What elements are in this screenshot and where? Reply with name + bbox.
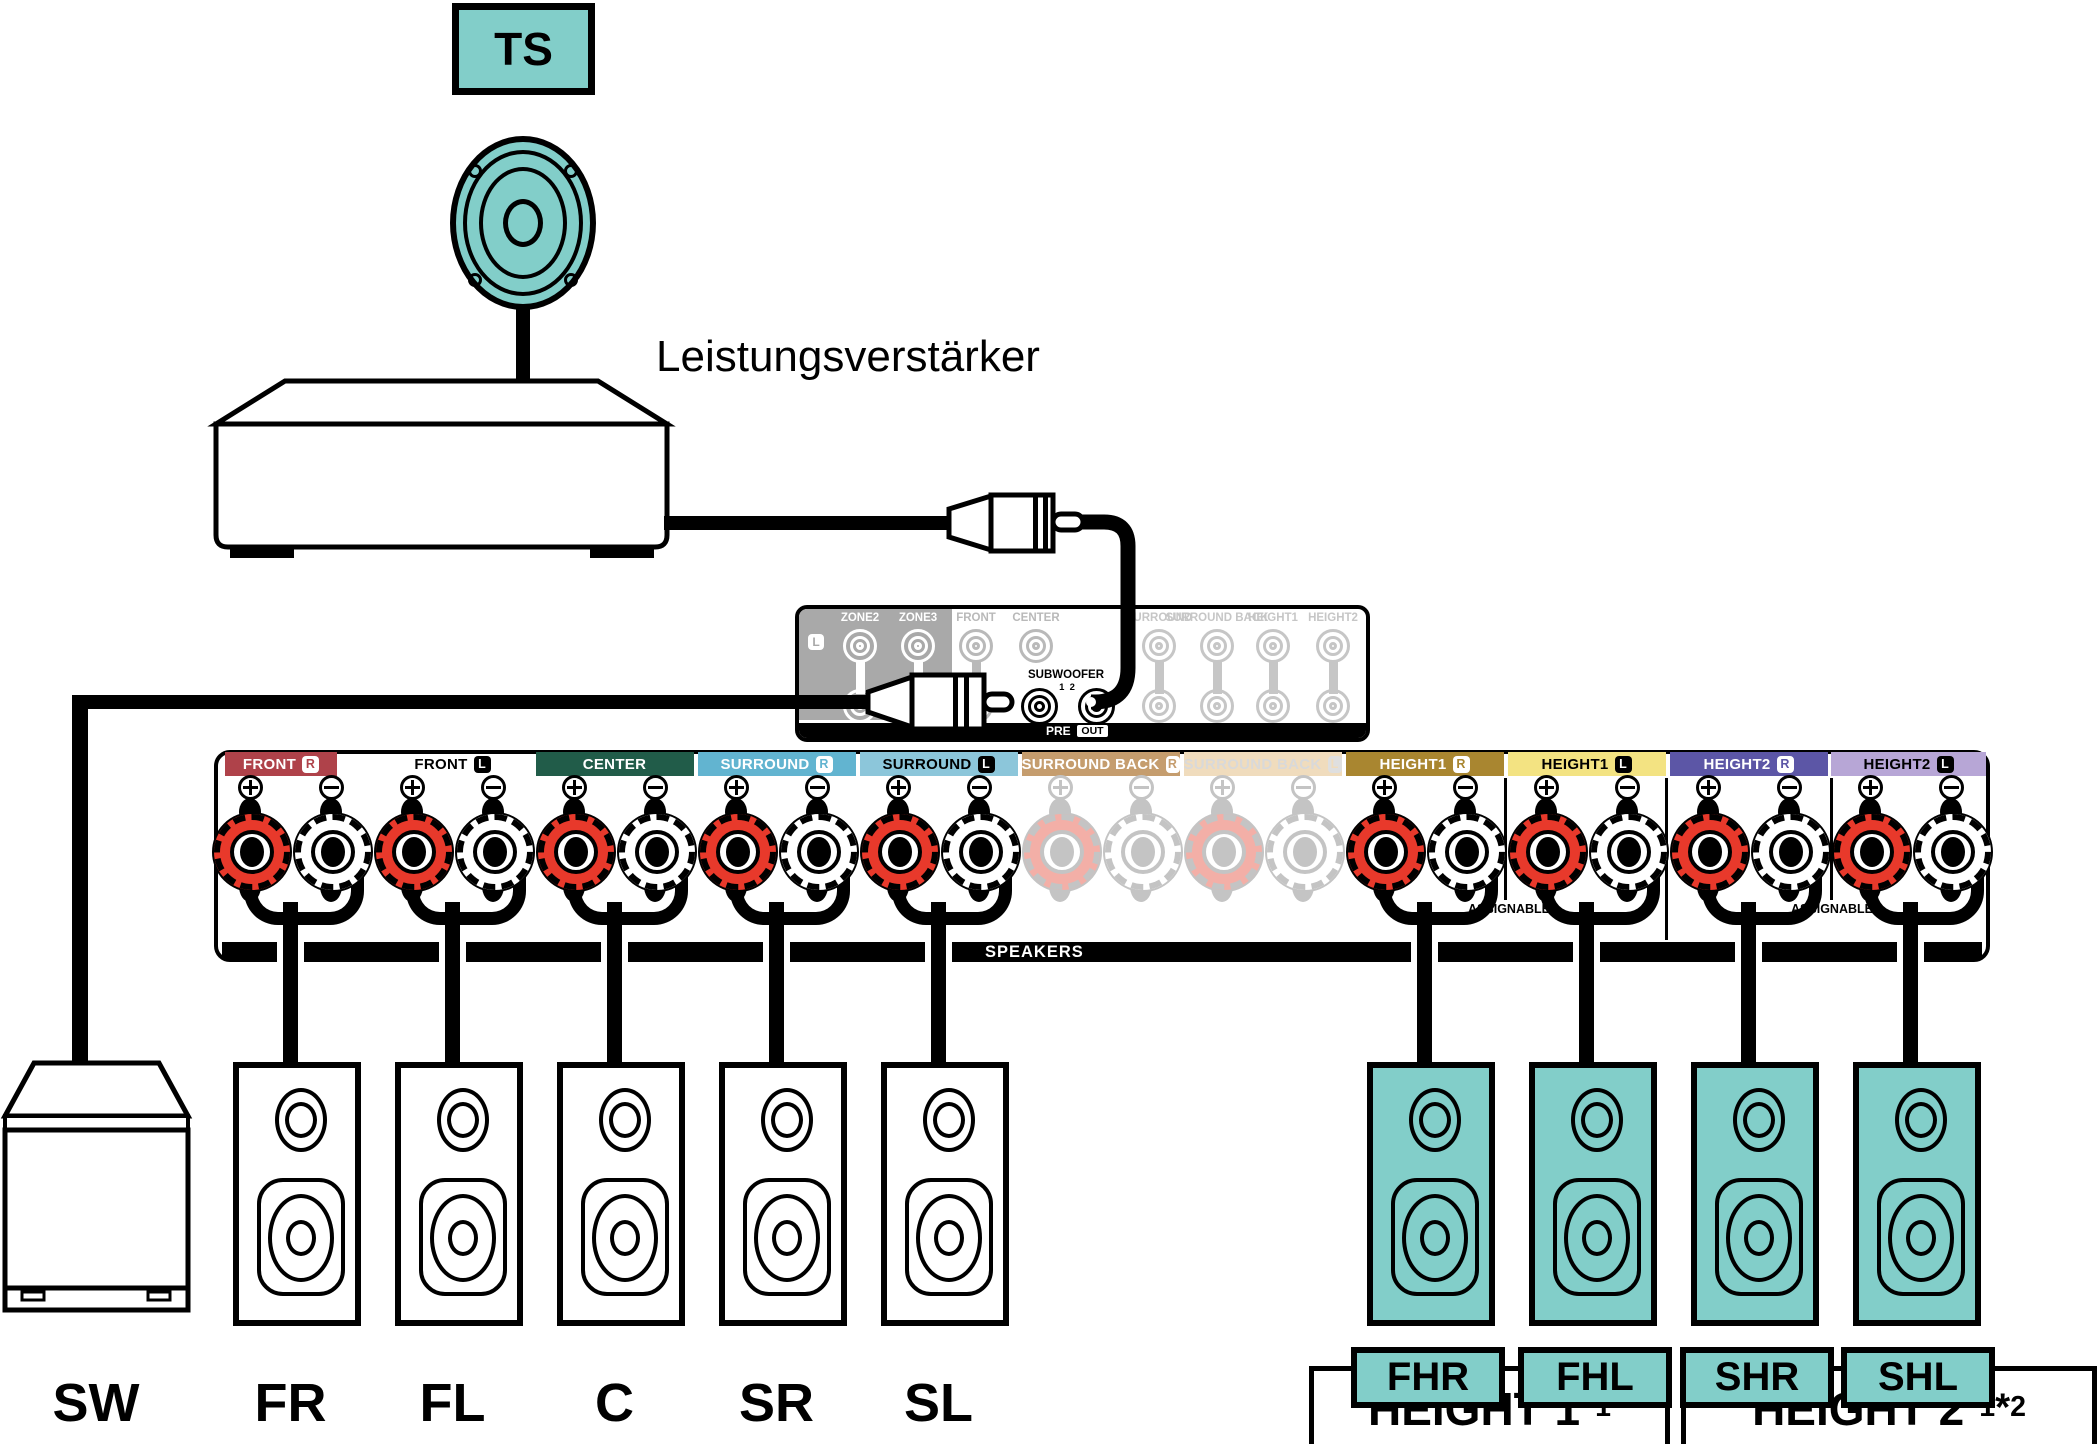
ts-speaker-icon — [450, 136, 596, 310]
binding-post-surround-back-r-plus — [1022, 812, 1102, 892]
channel-l-badge: L — [474, 756, 491, 773]
ts-label-box: TS — [452, 3, 595, 95]
terminal-header-label: SURROUND BACK — [1022, 756, 1160, 773]
assignable-divider — [1830, 778, 1833, 900]
subwoofer-cable-graphic — [0, 660, 1010, 740]
speaker-cable-surround-l — [931, 902, 946, 1064]
speaker-woofer — [1582, 1220, 1612, 1256]
binding-post-height2-r-plus — [1670, 812, 1750, 892]
terminal-minus-icon-center — [643, 775, 668, 800]
ts-speaker-screw — [468, 273, 482, 287]
binding-post-center — [1536, 837, 1560, 867]
terminal-plus-icon-height1-r — [1372, 775, 1397, 800]
terminal-header-label: HEIGHT1 — [1379, 756, 1446, 773]
binding-post-height2-r-minus — [1751, 812, 1831, 892]
subwoofer-front-face — [5, 1130, 188, 1288]
amplifier-front-face — [216, 424, 667, 547]
rca-plug-2-body — [912, 675, 984, 729]
terminal-minus-icon-height2-r — [1777, 775, 1802, 800]
speaker-tweeter — [1419, 1102, 1451, 1138]
terminal-plus-icon-height2-r — [1696, 775, 1721, 800]
terminal-plus-icon-surround-l — [886, 775, 911, 800]
preout-jack-height2-bottom-center — [1329, 702, 1337, 710]
binding-post-surround-l-minus — [941, 812, 1021, 892]
terminal-minus-icon-height1-r — [1453, 775, 1478, 800]
speaker-icon-shr — [1691, 1062, 1819, 1326]
speaker-woofer — [610, 1220, 640, 1256]
binding-post-front-r-minus — [293, 812, 373, 892]
speaker-woofer — [286, 1220, 316, 1256]
preout-jack-height2-top — [1316, 629, 1350, 663]
binding-post-center-minus — [617, 812, 697, 892]
terminal-plus-icon-front-l — [400, 775, 425, 800]
channel-l-badge: L — [1937, 756, 1954, 773]
subwoofer2-jack-hole — [1086, 697, 1096, 707]
terminal-minus-icon-surround-back-r — [1129, 775, 1154, 800]
speaker-icon-fr — [233, 1062, 361, 1326]
subwoofer-speaker-label: SW — [16, 1372, 176, 1434]
speaker-woofer — [1420, 1220, 1450, 1256]
speaker-cable-center — [607, 902, 622, 1064]
terminal-header-height2-l: HEIGHT2L — [1831, 752, 1986, 776]
speakers-bar-segment — [1438, 942, 1573, 959]
binding-post-height1-l-plus — [1508, 812, 1588, 892]
binding-post-height1-l-minus — [1589, 812, 1669, 892]
preout-jack-height1-bottom — [1256, 689, 1290, 723]
binding-post-center — [1941, 837, 1965, 867]
rca-plug-2-ring — [964, 675, 969, 729]
ts-speaker-screw — [564, 273, 578, 287]
speakers-bar-segment — [790, 942, 925, 959]
speaker-tag-fhl: FHL — [1518, 1347, 1672, 1408]
binding-post-center — [1860, 837, 1884, 867]
binding-post-surround-r-minus — [779, 812, 859, 892]
preout-jack-surround-back-bottom — [1200, 689, 1234, 723]
binding-post-height2-l-plus — [1832, 812, 1912, 892]
speaker-woofer — [1744, 1220, 1774, 1256]
preout-jack-height1-bottom-center — [1269, 702, 1277, 710]
speaker-label-sl: SL — [859, 1372, 1019, 1434]
terminal-header-label: CENTER — [583, 756, 646, 773]
binding-post-center — [888, 837, 912, 867]
terminal-plus-icon-height2-l — [1858, 775, 1883, 800]
subwoofer-rca-cable — [72, 695, 872, 709]
speaker-tweeter — [447, 1102, 479, 1138]
binding-post-center — [1698, 837, 1722, 867]
speaker-label-fr: FR — [211, 1372, 371, 1434]
speaker-icon-fhl — [1529, 1062, 1657, 1326]
preout-jack-height1-top-center — [1269, 642, 1277, 650]
binding-post-center — [1455, 837, 1479, 867]
binding-post-height2-l-minus — [1913, 812, 1993, 892]
speakers-bar-segment — [1600, 942, 1735, 959]
binding-post-center — [402, 837, 426, 867]
rca-plug-2-boot — [868, 677, 912, 727]
speaker-tag-shr: SHR — [1680, 1347, 1834, 1408]
wiring-diagram-canvas: TS Leistungsverstärker L ZONE2ZONE3F — [0, 0, 2097, 1444]
speaker-woofer — [772, 1220, 802, 1256]
binding-post-surround-back-l-minus — [1265, 812, 1345, 892]
speaker-icon-c — [557, 1062, 685, 1326]
rca-plug-1-ring — [1033, 495, 1038, 551]
terminal-header-surround-back-l: SURROUND BACKL — [1184, 752, 1342, 776]
preout-column-label-height2: HEIGHT2 — [1273, 612, 1370, 624]
speakers-bar-segment — [628, 942, 763, 959]
speaker-tweeter — [285, 1102, 317, 1138]
terminal-header-height1-r: HEIGHT1R — [1346, 752, 1504, 776]
binding-post-center — [1131, 837, 1155, 867]
rca-plug-1-ring — [1043, 495, 1048, 551]
subwoofer-cable-vertical — [72, 700, 88, 1064]
preout-jack-height1-top — [1256, 629, 1290, 663]
ts-speaker-hub — [503, 199, 543, 247]
terminal-header-front-r: FRONTR — [225, 752, 337, 776]
speaker-label-c: C — [535, 1372, 695, 1434]
preout-jack-surround-back-top-center — [1213, 642, 1221, 650]
speaker-woofer — [1906, 1220, 1936, 1256]
binding-post-height1-r-minus — [1427, 812, 1507, 892]
preout-jack-height2-bottom — [1316, 689, 1350, 723]
terminal-header-surround-back-r: SURROUND BACKR — [1022, 752, 1180, 776]
speaker-woofer — [934, 1220, 964, 1256]
binding-post-surround-back-r-minus — [1103, 812, 1183, 892]
speaker-tweeter — [1743, 1102, 1775, 1138]
terminal-header-label: SURROUND — [720, 756, 809, 773]
terminal-header-center: CENTER — [536, 752, 694, 776]
rca-plug-2-tip — [984, 694, 1012, 710]
terminal-header-label: HEIGHT2 — [1703, 756, 1770, 773]
speaker-cable-surround-r — [769, 902, 784, 1064]
amplifier-top-face — [216, 381, 667, 424]
terminal-plus-icon-surround-back-r — [1048, 775, 1073, 800]
binding-post-center — [645, 837, 669, 867]
speaker-icon-fl — [395, 1062, 523, 1326]
binding-post-center — [1617, 837, 1641, 867]
binding-post-height1-r-plus — [1346, 812, 1426, 892]
terminal-minus-icon-front-r — [319, 775, 344, 800]
speaker-tag-shl: SHL — [1841, 1347, 1995, 1408]
terminal-minus-icon-height2-l — [1939, 775, 1964, 800]
subwoofer-base-slot — [22, 1292, 44, 1300]
speaker-tweeter — [1581, 1102, 1613, 1138]
channel-r-badge: R — [1166, 756, 1180, 773]
amplifier-foot — [230, 547, 294, 558]
binding-post-surround-l-plus — [860, 812, 940, 892]
speaker-icon-shl — [1853, 1062, 1981, 1326]
terminal-header-label: FRONT — [243, 756, 296, 773]
speaker-tweeter — [1905, 1102, 1937, 1138]
terminal-minus-icon-surround-l — [967, 775, 992, 800]
speaker-woofer — [448, 1220, 478, 1256]
terminal-header-front-l: FRONTL — [374, 752, 532, 776]
speaker-icon-fhr — [1367, 1062, 1495, 1326]
terminal-plus-icon-front-r — [238, 775, 263, 800]
terminal-minus-icon-surround-back-l — [1291, 775, 1316, 800]
subwoofer-speaker-icon — [0, 1050, 220, 1320]
binding-post-center — [564, 837, 588, 867]
subwoofer-base-slot — [148, 1292, 170, 1300]
speaker-tweeter — [771, 1102, 803, 1138]
channel-l-badge: L — [1328, 756, 1342, 773]
terminal-header-height2-r: HEIGHT2R — [1670, 752, 1828, 776]
rca-plug-2-ring — [953, 675, 958, 729]
binding-post-center — [969, 837, 993, 867]
speaker-cable-height1-r — [1417, 902, 1432, 1064]
speaker-cable-height2-l — [1903, 902, 1918, 1064]
speaker-cable-height2-r — [1741, 902, 1756, 1064]
channel-r-badge: R — [1777, 756, 1794, 773]
amplifier-foot — [590, 547, 654, 558]
cable-to-subwoofer2-jack — [1081, 522, 1128, 702]
terminal-minus-icon-surround-r — [805, 775, 830, 800]
terminal-minus-icon-height1-l — [1615, 775, 1640, 800]
binding-post-center — [240, 837, 264, 867]
binding-post-center — [1779, 837, 1803, 867]
speaker-tweeter — [933, 1102, 965, 1138]
terminal-header-label: HEIGHT1 — [1541, 756, 1608, 773]
speakers-bar-segment — [1762, 942, 1897, 959]
binding-post-surround-r-plus — [698, 812, 778, 892]
binding-post-center — [1050, 837, 1074, 867]
terminal-plus-icon-surround-r — [724, 775, 749, 800]
binding-post-front-l-minus — [455, 812, 535, 892]
binding-post-front-r-plus — [212, 812, 292, 892]
speakers-bar-segment — [1924, 942, 1982, 959]
channel-r-badge: R — [302, 756, 319, 773]
pre-label: PRE — [1046, 724, 1071, 738]
speaker-label-sr: SR — [697, 1372, 857, 1434]
terminal-plus-icon-height1-l — [1534, 775, 1559, 800]
speaker-cable-front-r — [283, 902, 298, 1064]
ts-label: TS — [494, 22, 553, 76]
terminal-header-label: FRONT — [414, 756, 467, 773]
terminal-header-label: HEIGHT2 — [1863, 756, 1930, 773]
terminal-header-surround-l: SURROUNDL — [860, 752, 1018, 776]
binding-post-center — [483, 837, 507, 867]
speaker-tweeter — [609, 1102, 641, 1138]
speakers-label: SPEAKERS — [985, 943, 1084, 962]
speaker-icon-sr — [719, 1062, 847, 1326]
terminal-header-surround-r: SURROUNDR — [698, 752, 856, 776]
rca-cable-1 — [664, 516, 950, 530]
preout-jack-surround-back-bottom-center — [1213, 702, 1221, 710]
ts-speaker-screw — [564, 164, 578, 178]
ts-speaker-screw — [468, 164, 482, 178]
assignable-label: ASSIGNABLE — [1449, 902, 1569, 916]
footnote-mark: *2 — [1995, 1391, 2026, 1423]
rca-plug-1-tip — [1053, 514, 1083, 530]
terminal-header-height1-l: HEIGHT1L — [1508, 752, 1666, 776]
subwoofer-top-face — [5, 1063, 188, 1116]
terminal-plus-icon-surround-back-l — [1210, 775, 1235, 800]
binding-post-center — [807, 837, 831, 867]
speaker-tag-fhr: FHR — [1351, 1347, 1505, 1408]
preout-jack-height2-top-center — [1329, 642, 1337, 650]
speaker-cable-height1-l — [1579, 902, 1594, 1064]
binding-post-center — [1374, 837, 1398, 867]
speakers-bar-segment — [222, 942, 277, 959]
out-badge: OUT — [1077, 725, 1108, 737]
binding-post-center — [1293, 837, 1317, 867]
speakers-bar-segment — [304, 942, 439, 959]
terminal-minus-icon-front-l — [481, 775, 506, 800]
channel-l-badge: L — [1615, 756, 1632, 773]
binding-post-front-l-plus — [374, 812, 454, 892]
binding-post-center-plus — [536, 812, 616, 892]
channel-l-badge: L — [978, 756, 995, 773]
terminal-plus-icon-center — [562, 775, 587, 800]
binding-post-surround-back-l-plus — [1184, 812, 1264, 892]
speaker-icon-sl — [881, 1062, 1009, 1326]
channel-r-badge: R — [816, 756, 833, 773]
speaker-cable-front-l — [445, 902, 460, 1064]
speakers-bar-segment — [466, 942, 601, 959]
binding-post-center — [1212, 837, 1236, 867]
rca-plug-1-boot — [949, 496, 991, 550]
binding-post-center — [726, 837, 750, 867]
preout-jack-surround-back-top — [1200, 629, 1234, 663]
terminal-header-label: SURROUND BACK — [1184, 756, 1322, 773]
speaker-label-fl: FL — [373, 1372, 533, 1434]
channel-r-badge: R — [1453, 756, 1470, 773]
binding-post-center — [321, 837, 345, 867]
terminal-header-label: SURROUND — [882, 756, 971, 773]
assignable-label: ASSIGNABLE — [1772, 902, 1892, 916]
